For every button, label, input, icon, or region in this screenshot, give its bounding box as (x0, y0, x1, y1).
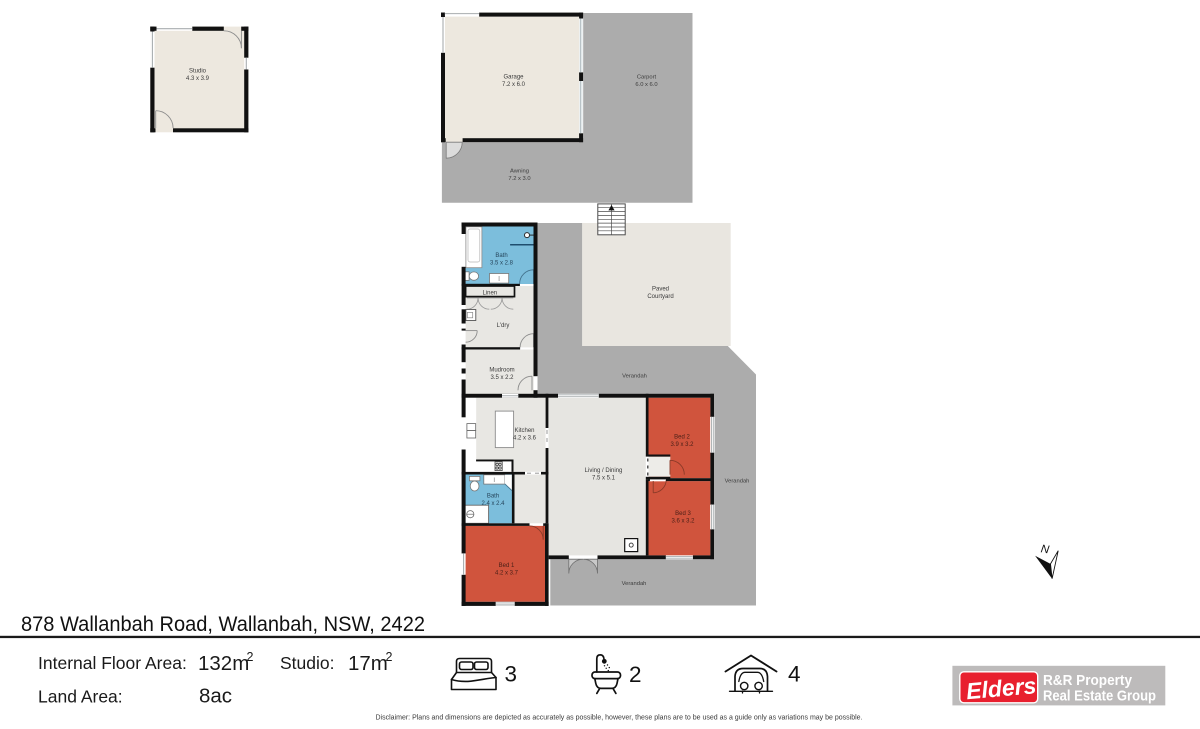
svg-text:17m: 17m (348, 652, 388, 675)
svg-text:4.2 x 3.6: 4.2 x 3.6 (513, 436, 537, 442)
svg-text:Verandah: Verandah (622, 374, 647, 380)
svg-text:Bath: Bath (487, 494, 499, 500)
svg-text:3.9 x 3.2: 3.9 x 3.2 (670, 442, 694, 448)
svg-text:R&R Property: R&R Property (1043, 673, 1133, 689)
svg-text:3: 3 (505, 662, 518, 687)
svg-text:3.5 x 2.8: 3.5 x 2.8 (490, 261, 514, 267)
svg-text:6.0 x 6.0: 6.0 x 6.0 (635, 82, 657, 88)
svg-text:3.6 x 3.2: 3.6 x 3.2 (671, 519, 695, 525)
svg-text:4.3 x 3.9: 4.3 x 3.9 (186, 76, 210, 82)
svg-text:Awning: Awning (510, 169, 529, 175)
svg-text:Garage: Garage (503, 75, 524, 81)
svg-text:Paved: Paved (652, 287, 669, 293)
svg-text:Real Estate Group: Real Estate Group (1043, 689, 1156, 705)
svg-text:Internal Floor Area:: Internal Floor Area: (38, 653, 187, 673)
svg-text:2: 2 (247, 650, 254, 664)
svg-text:N: N (1040, 543, 1051, 556)
svg-text:7.2 x 3.0: 7.2 x 3.0 (508, 176, 530, 182)
svg-text:Bed 1: Bed 1 (499, 563, 515, 569)
svg-text:Bath: Bath (495, 253, 507, 259)
svg-text:Courtyard: Courtyard (647, 294, 673, 300)
svg-text:Disclaimer: Plans and dimensio: Disclaimer: Plans and dimensions are dep… (376, 713, 863, 722)
svg-text:Linen: Linen (482, 291, 497, 297)
svg-text:2: 2 (629, 662, 642, 687)
svg-text:8ac: 8ac (199, 685, 232, 708)
svg-text:L'dry: L'dry (497, 323, 510, 329)
svg-text:Bed 3: Bed 3 (675, 511, 691, 517)
svg-text:2.4 x 2.4: 2.4 x 2.4 (481, 501, 505, 507)
svg-text:Studio:: Studio: (280, 653, 334, 673)
svg-text:2: 2 (386, 650, 393, 664)
svg-text:4.2 x 3.7: 4.2 x 3.7 (495, 571, 519, 577)
svg-text:7.2 x 6.0: 7.2 x 6.0 (502, 82, 526, 88)
svg-text:Living / Dining: Living / Dining (585, 468, 623, 474)
svg-text:132m: 132m (198, 652, 249, 675)
svg-text:878 Wallanbah Road, Wallanbah,: 878 Wallanbah Road, Wallanbah, NSW, 2422 (21, 613, 425, 636)
svg-text:Verandah: Verandah (622, 581, 647, 587)
svg-text:7.5 x 5.1: 7.5 x 5.1 (592, 476, 616, 482)
svg-text:Studio: Studio (189, 69, 207, 75)
svg-text:Mudroom: Mudroom (489, 368, 514, 374)
svg-text:3.5 x 2.2: 3.5 x 2.2 (490, 375, 514, 381)
svg-text:4: 4 (788, 662, 801, 687)
svg-text:Carport: Carport (637, 75, 657, 81)
svg-text:Land Area:: Land Area: (38, 687, 123, 707)
svg-text:Verandah: Verandah (725, 479, 750, 485)
svg-text:Bed 2: Bed 2 (674, 435, 690, 441)
svg-text:Kitchen: Kitchen (514, 428, 534, 434)
